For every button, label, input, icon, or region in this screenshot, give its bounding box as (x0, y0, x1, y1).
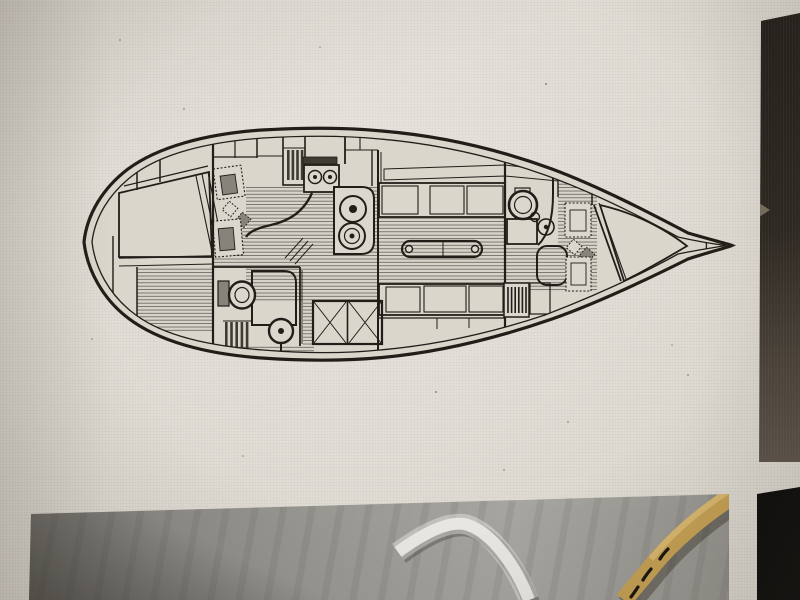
toilet-aft (218, 281, 255, 309)
stove-backsplash (303, 157, 337, 164)
yellow-hose (624, 492, 735, 600)
white-hose (398, 524, 532, 600)
screen-photo (0, 0, 800, 600)
fwd-cushion-1 (565, 203, 591, 237)
fwd-cushion-2 (566, 257, 591, 291)
galley-sinks (334, 187, 374, 254)
